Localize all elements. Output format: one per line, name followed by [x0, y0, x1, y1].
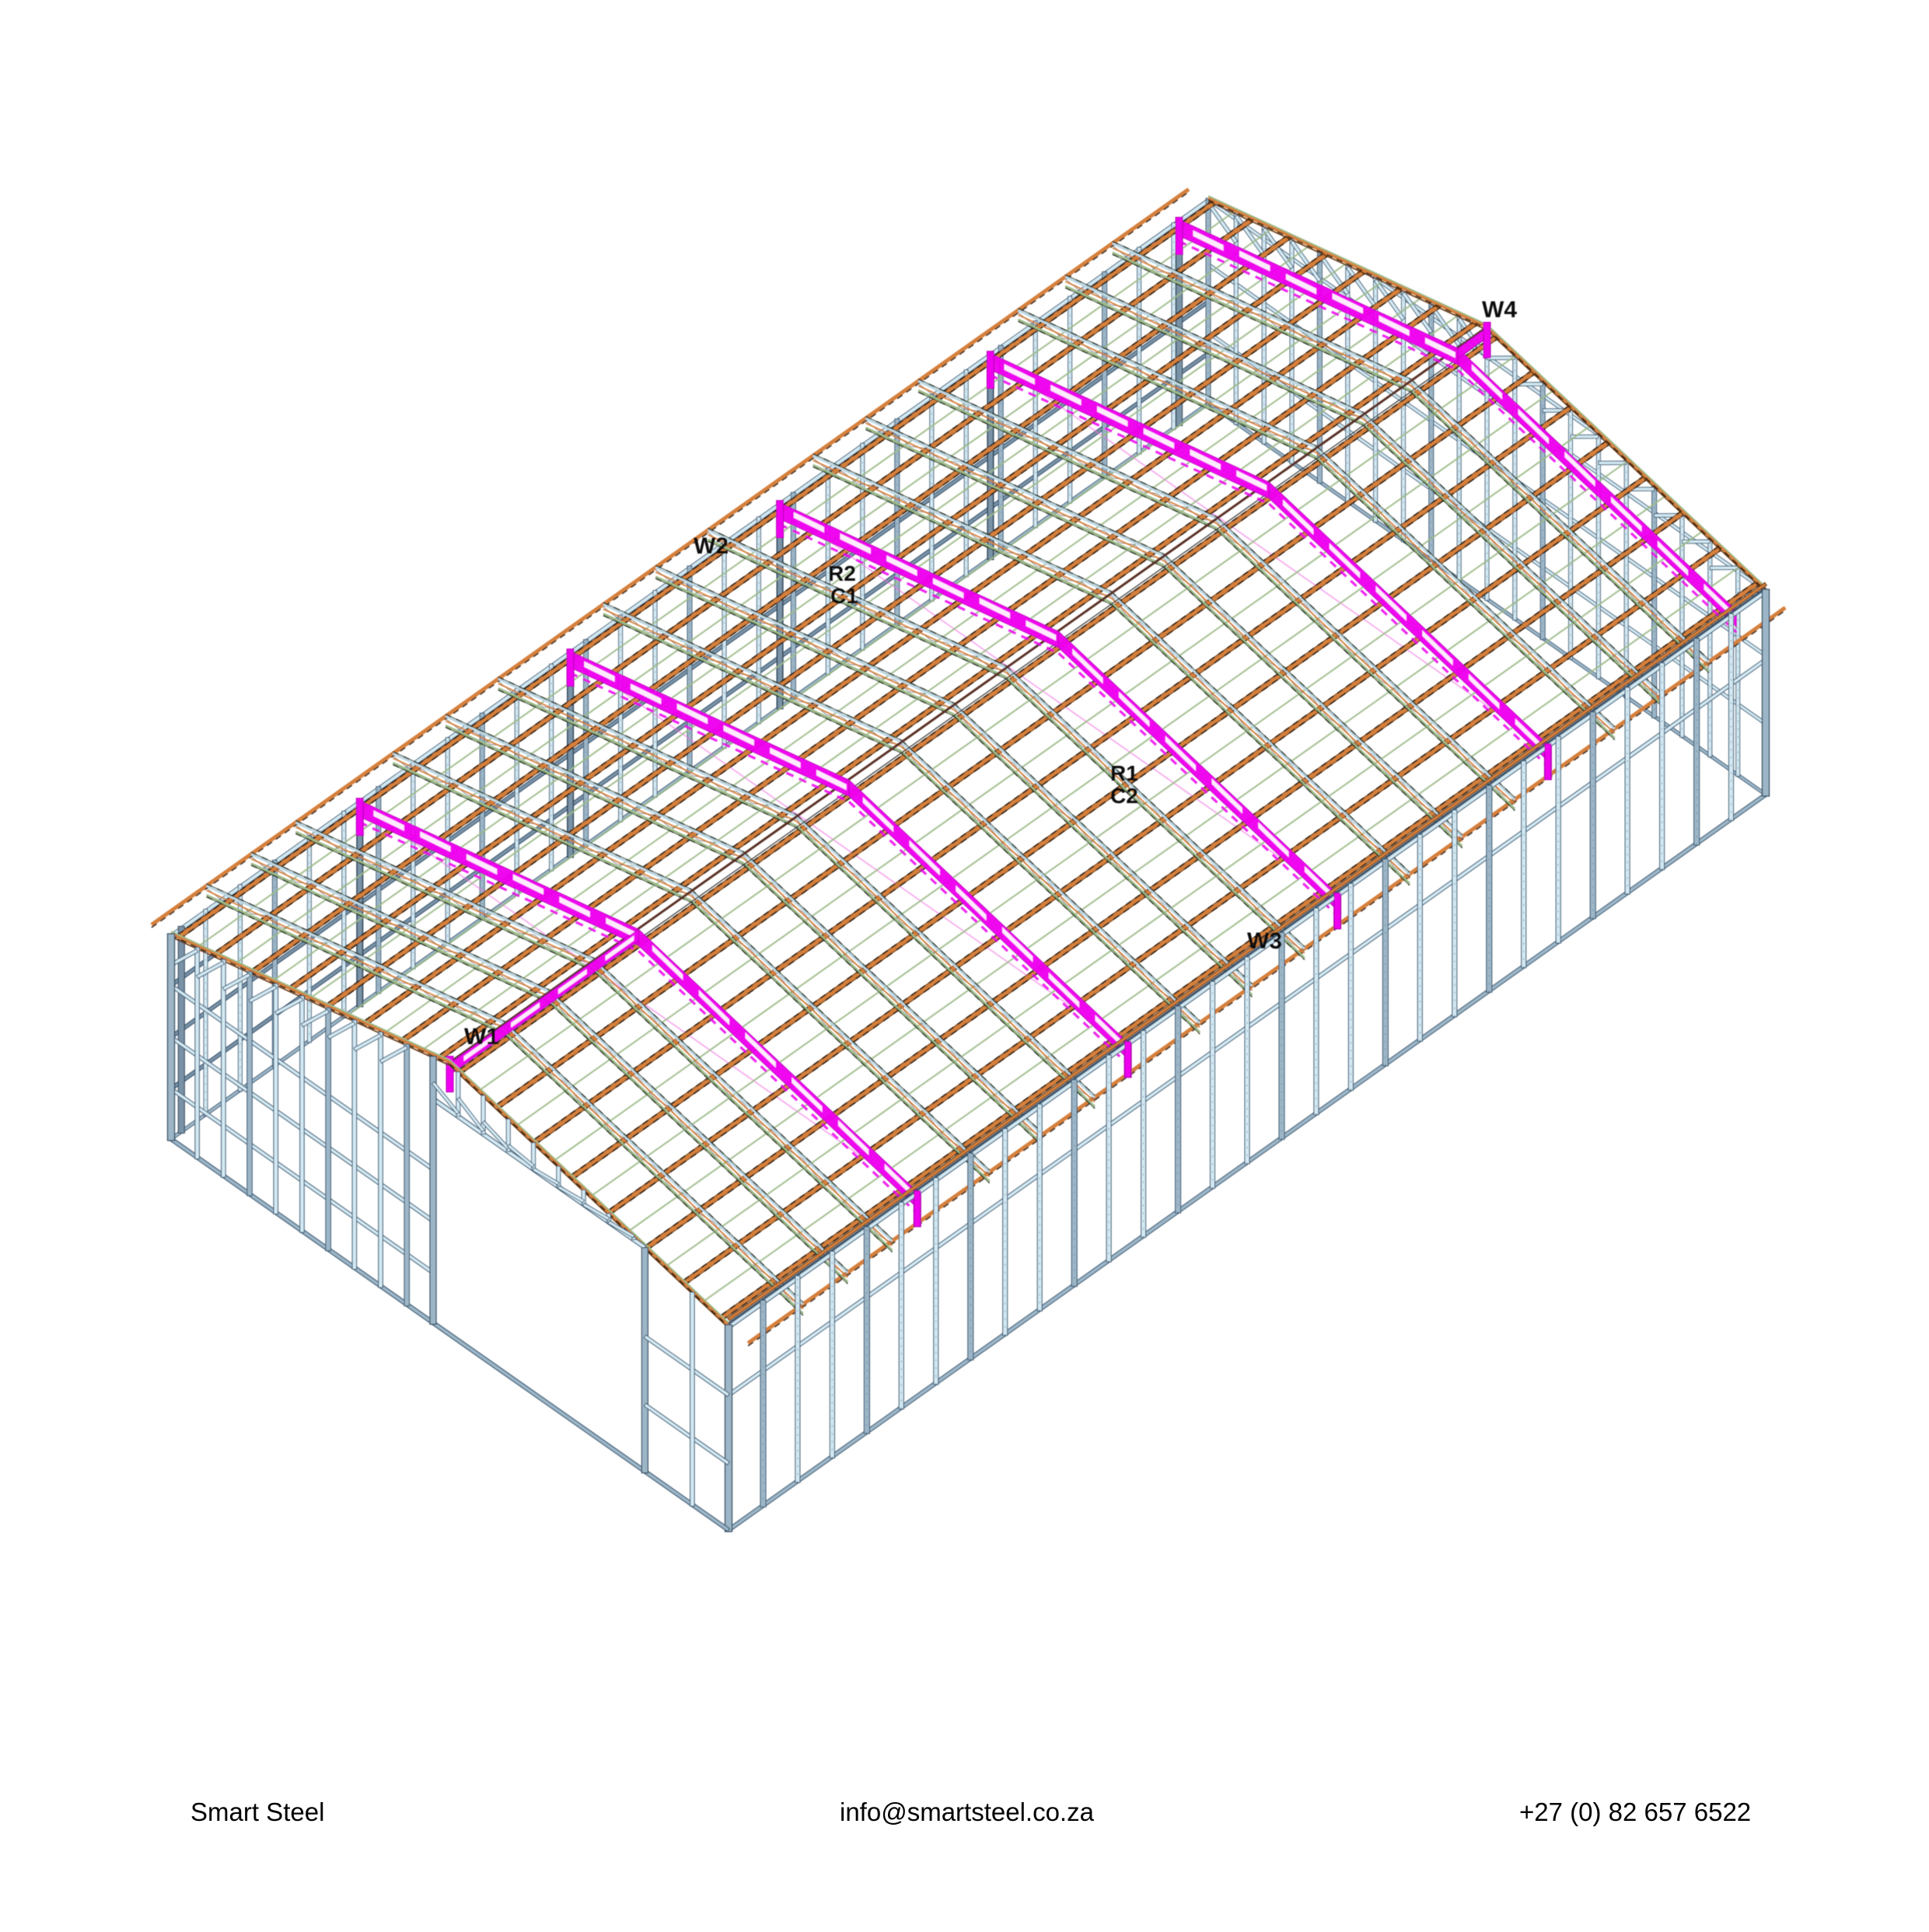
svg-text:W4: W4: [1482, 297, 1517, 323]
svg-text:W3: W3: [1247, 928, 1282, 954]
svg-text:R2: R2: [828, 561, 856, 585]
svg-text:W1: W1: [464, 1024, 499, 1050]
svg-text:C2: C2: [1110, 784, 1138, 808]
svg-text:C1: C1: [830, 584, 858, 608]
svg-text:W2: W2: [694, 533, 729, 559]
svg-text:R1: R1: [1110, 761, 1138, 785]
